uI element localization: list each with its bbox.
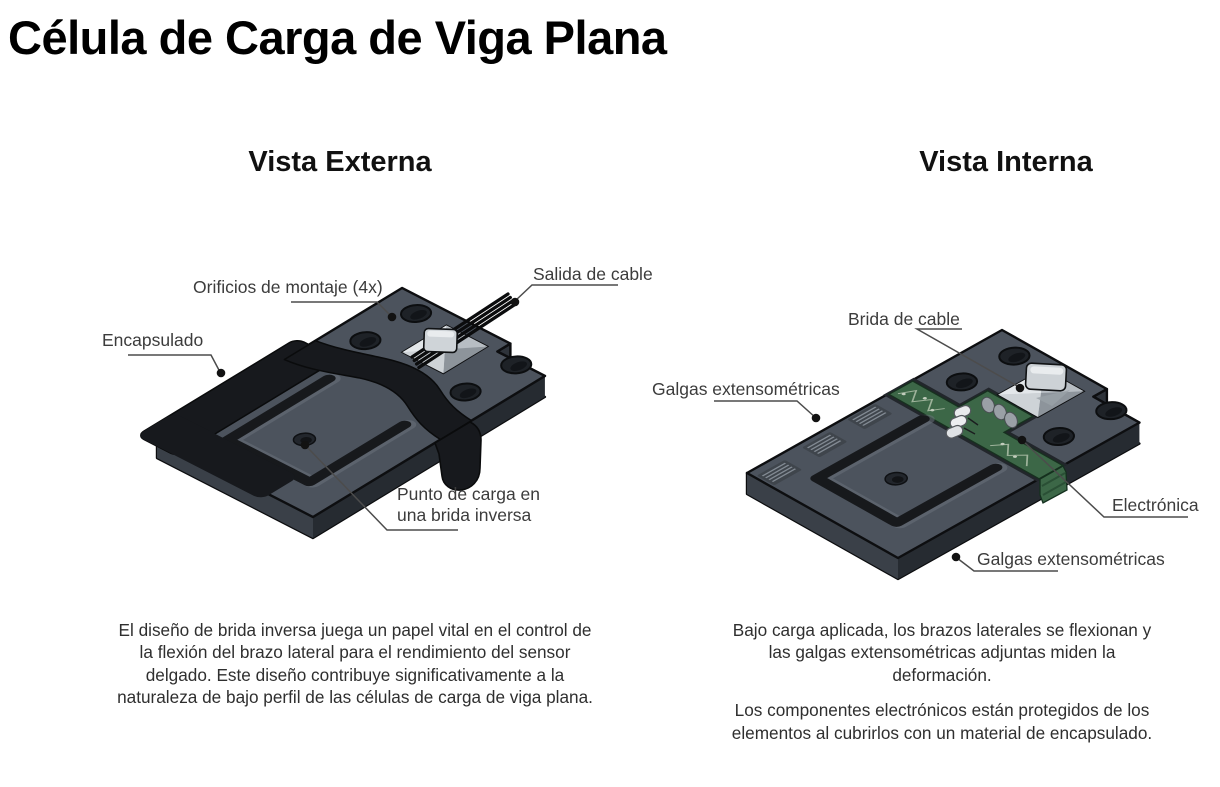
leader-dot-electronics	[1018, 436, 1027, 445]
internal-description-p1: Bajo carga aplicada, los brazos laterale…	[722, 619, 1162, 686]
leader-encapsulation	[128, 355, 220, 372]
leader-dot-cable-clamp	[1016, 384, 1025, 393]
leader-dot-encapsulation	[217, 369, 226, 378]
label-mounting-holes: Orificios de montaje (4x)	[193, 277, 383, 298]
internal-view-illustration	[745, 329, 1154, 579]
leader-dot-cable-exit	[511, 298, 520, 307]
label-strain-gauges-left: Galgas extensométricas	[652, 379, 840, 400]
leader-dot-strain-gauges-bottom	[952, 553, 961, 562]
leader-dot-mounting-holes	[388, 313, 397, 322]
internal-view-heading: Vista Interna	[856, 146, 1156, 179]
leader-strain-gauges-left	[714, 401, 816, 418]
label-electronics: Electrónica	[1112, 495, 1199, 516]
cable-clamp-block	[424, 328, 458, 352]
cable-clamp-block	[1025, 363, 1066, 391]
external-description-text: El diseño de brida inversa juega un pape…	[113, 619, 597, 709]
leader-dot-load-point	[301, 441, 310, 450]
internal-description: Bajo carga aplicada, los brazos laterale…	[722, 619, 1162, 744]
external-description: El diseño de brida inversa juega un pape…	[113, 619, 597, 709]
internal-description-p2: Los componentes electrónicos están prote…	[722, 699, 1162, 744]
page-title: Célula de Carga de Viga Plana	[8, 10, 908, 65]
leader-dot-strain-gauges-left	[812, 414, 821, 423]
external-view-heading: Vista Externa	[190, 146, 490, 179]
flat-beam-load-cell-page: Célula de Carga de Viga Plana Vista Exte…	[0, 0, 1220, 787]
label-cable-clamp: Brida de cable	[848, 309, 960, 330]
leader-cable-exit	[515, 285, 618, 301]
label-load-point: Punto de carga en una brida inversa	[397, 484, 555, 526]
label-strain-gauges-bottom: Galgas extensométricas	[977, 549, 1165, 570]
label-cable-exit: Salida de cable	[533, 264, 653, 285]
label-encapsulation: Encapsulado	[102, 330, 203, 351]
